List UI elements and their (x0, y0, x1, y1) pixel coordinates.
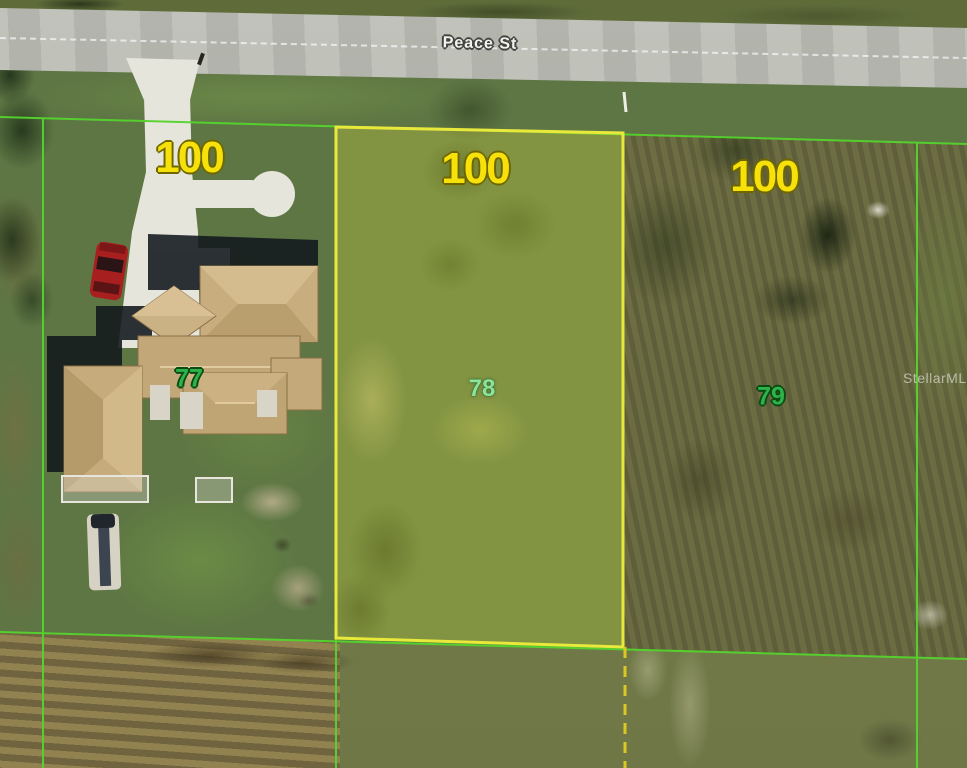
parcel-number-77: 77 (175, 367, 203, 392)
aerial-parcel-map: Peace St 100 100 100 77 78 79 StellarMLS (0, 0, 967, 768)
parcel-number-79: 79 (757, 385, 785, 410)
lot-width-label-parcel-77: 100 (155, 136, 222, 180)
street-label: Peace St (442, 35, 517, 53)
mls-watermark: StellarMLS (903, 370, 967, 386)
utility-pole (624, 92, 626, 112)
lot-width-label-parcel-78: 100 (441, 147, 508, 191)
parcel-number-78: 78 (469, 377, 496, 401)
lot-width-label-parcel-79: 100 (730, 155, 797, 199)
